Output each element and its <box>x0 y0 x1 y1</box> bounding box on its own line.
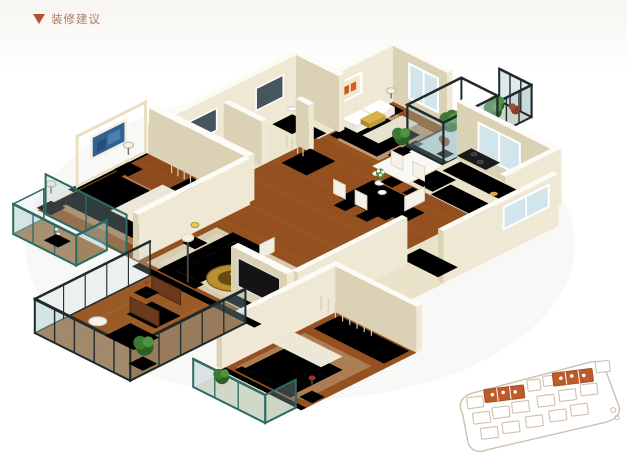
section-header: 装修建议 <box>33 11 101 27</box>
triangle-down-icon <box>33 14 45 24</box>
section-title: 装修建议 <box>51 11 101 27</box>
page: 装修建议 <box>0 0 627 452</box>
site-plan-sketch <box>457 359 623 452</box>
floorplan-3d-render <box>0 0 627 452</box>
